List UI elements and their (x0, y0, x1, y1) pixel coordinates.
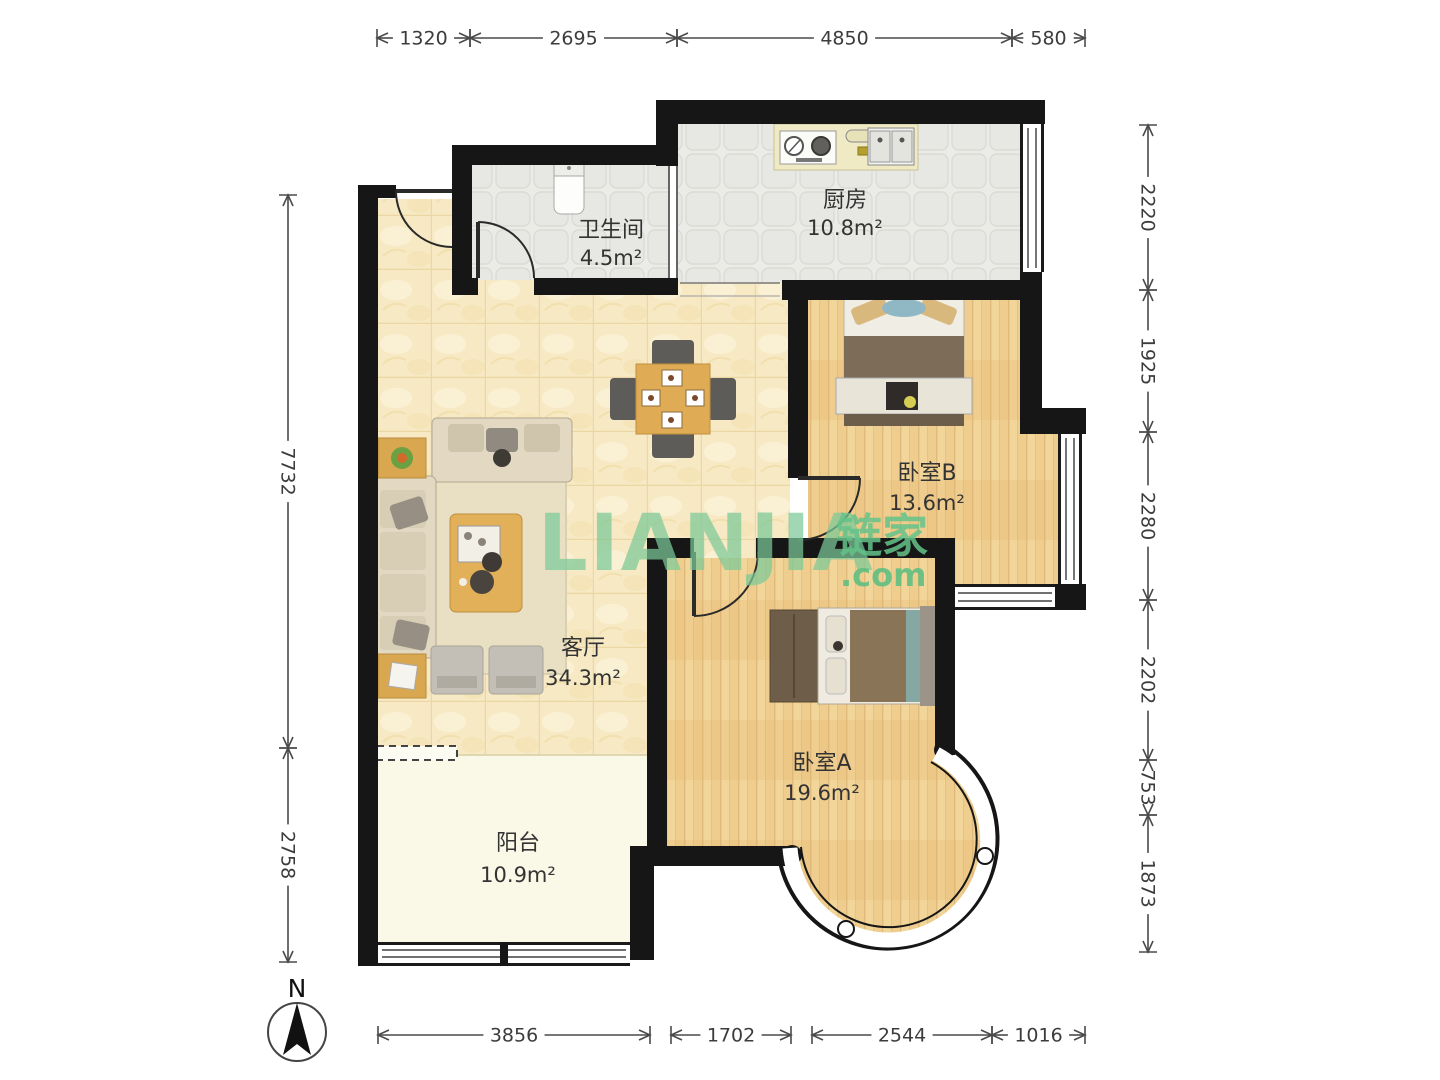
wall-entry-step (452, 145, 472, 293)
blanket (844, 336, 964, 378)
wall-left-outer (358, 185, 378, 966)
dimension-label: 1925 (1137, 337, 1159, 385)
kitchen-fixtures (774, 124, 918, 170)
dimension-label: 1016 (1014, 1025, 1062, 1047)
balcony-floor (378, 755, 647, 960)
wall-kitchen-bottom (782, 280, 1042, 300)
dimension-bottom-1: 1702 (671, 1025, 791, 1047)
watermark-suffix: .com (840, 556, 926, 594)
pillow (826, 658, 846, 694)
cup (459, 578, 467, 586)
plant-pot (397, 453, 407, 463)
drain (878, 138, 883, 143)
dimension-left-1: 2758 (277, 748, 299, 962)
dimension-left-0: 7732 (277, 195, 299, 748)
dimension-label: 4850 (820, 28, 868, 50)
wall-bathroom-bottom-right (534, 278, 678, 295)
ottoman-seam (437, 676, 477, 688)
toilet-button (567, 166, 571, 170)
bed-footer (844, 414, 964, 426)
plate (668, 417, 674, 423)
dimension-right-1: 1925 (1137, 290, 1159, 432)
dimension-label: 2280 (1137, 492, 1159, 540)
wall-entry-top (358, 185, 396, 198)
wall-bedroom-a-right (935, 545, 955, 755)
floor-plan-svg: LIANJIA 链家 .com 卫生间 4.5m² 厨房 10.8m² 卧室B … (0, 0, 1440, 1080)
book-icon (388, 662, 417, 689)
dimension-label: 1320 (399, 28, 447, 50)
bedroom-b-bay-right-window (1058, 434, 1082, 584)
dining-chair (610, 378, 638, 420)
room-area-kitchen: 10.8m² (807, 216, 883, 240)
dimension-top-1: 2695 (470, 28, 677, 50)
dimension-bottom-3: 1016 (992, 1025, 1085, 1047)
plate (648, 395, 654, 401)
tray-dot (904, 396, 916, 408)
dimension-right-0: 2220 (1137, 125, 1159, 290)
plate (692, 395, 698, 401)
dimension-label: 580 (1030, 28, 1066, 50)
burner (812, 137, 830, 155)
watermark-brand: LIANJIA (538, 499, 875, 589)
room-name-bedroom-a: 卧室A (792, 751, 851, 776)
dimension-label: 753 (1137, 769, 1159, 805)
wall-bedroom-b-right (1020, 272, 1042, 416)
wall-bay-b-top (1020, 408, 1086, 434)
coffee-table (450, 514, 522, 612)
blanket-accent (906, 610, 920, 702)
dining-chair (708, 378, 736, 420)
wall-balcony-right (630, 846, 654, 960)
dimension-bottom-0: 3856 (378, 1025, 650, 1047)
watermark-brand-cn: 链家 (836, 509, 928, 563)
side-table-books (378, 654, 426, 698)
bay-joint (977, 848, 993, 864)
sink-basin (870, 131, 890, 162)
dimension-label: 7732 (277, 447, 299, 495)
bedroom-a-furniture (770, 606, 938, 706)
blanket (850, 610, 914, 702)
dimension-bottom-2: 2544 (812, 1025, 992, 1047)
dimension-right-5: 1873 (1137, 815, 1159, 952)
tea-cup (478, 538, 486, 546)
kettle (470, 570, 494, 594)
wall-bedroom-a-bottom (630, 846, 795, 866)
bed-accent (833, 641, 843, 651)
dimension-top-2: 4850 (677, 28, 1012, 50)
window-band (1020, 124, 1044, 272)
bedroom-b-bay-bottom-window (955, 584, 1055, 610)
room-area-bedroom-a: 19.6m² (784, 781, 860, 805)
window-post (500, 942, 508, 966)
bathroom-fixtures (554, 164, 584, 214)
dimension-label: 1702 (707, 1025, 755, 1047)
wall-bathroom-top (452, 145, 678, 165)
dashed-partition-marker (377, 746, 457, 760)
dimension-label: 1873 (1137, 859, 1159, 907)
drain (900, 138, 905, 143)
sofa-long (372, 476, 436, 658)
bay-joint (838, 921, 854, 937)
kettle (482, 552, 502, 572)
tea-cup (464, 532, 472, 540)
sofa-accent (493, 449, 511, 467)
dimension-top-0: 1320 (377, 28, 470, 50)
room-name-bathroom: 卫生间 (578, 218, 644, 243)
dimension-right-4: 753 (1137, 760, 1159, 815)
plate (668, 375, 674, 381)
dimension-label: 2695 (549, 28, 597, 50)
bedroom-b-furniture (836, 286, 972, 426)
stove-knobs (796, 158, 822, 162)
window-band (955, 584, 1055, 610)
compass: N (268, 974, 326, 1061)
room-name-bedroom-b: 卧室B (897, 461, 956, 486)
kitchen-window (1020, 124, 1044, 272)
dimension-label: 2220 (1137, 183, 1159, 231)
sink-basin (892, 131, 912, 162)
sofa-cushion (380, 532, 426, 570)
room-area-balcony: 10.9m² (480, 863, 556, 887)
room-name-balcony: 阳台 (496, 831, 540, 856)
wall-kitchen-top (656, 100, 1045, 124)
window-band (1058, 434, 1082, 584)
wall-bay-b-bottom-post (1054, 584, 1086, 610)
sofa-loveseat (432, 418, 572, 482)
sofa-cushion (524, 424, 560, 452)
dimension-right-2: 2280 (1137, 432, 1159, 600)
compass-north-label: N (288, 974, 307, 1003)
side-table-plant (378, 438, 426, 478)
room-name-living: 客厅 (561, 636, 605, 661)
sofa-pillow (486, 428, 518, 452)
room-area-living: 34.3m² (545, 666, 621, 690)
dimension-top-3: 580 (1012, 28, 1085, 50)
sofa-cushion (448, 424, 484, 452)
room-area-bedroom-b: 13.6m² (889, 491, 965, 515)
dimension-label: 3856 (490, 1025, 538, 1047)
room-area-bathroom: 4.5m² (580, 246, 642, 270)
dimension-label: 2758 (277, 831, 299, 879)
dimension-label: 2202 (1137, 656, 1159, 704)
sofa-cushion (380, 574, 426, 612)
floor-plan: LIANJIA 链家 .com 卫生间 4.5m² 厨房 10.8m² 卧室B … (0, 0, 1440, 1080)
room-name-kitchen: 厨房 (823, 188, 867, 213)
wall-bathroom-bottom-left (452, 278, 478, 295)
dimension-right-3: 2202 (1137, 600, 1159, 760)
wall-bedroom-b-left (788, 280, 808, 478)
balcony-window (378, 942, 630, 966)
cushion (882, 299, 926, 317)
dimension-label: 2544 (878, 1025, 926, 1047)
headboard (920, 606, 936, 706)
ottoman-seam (496, 676, 536, 688)
watermark: LIANJIA 链家 .com (538, 499, 928, 594)
